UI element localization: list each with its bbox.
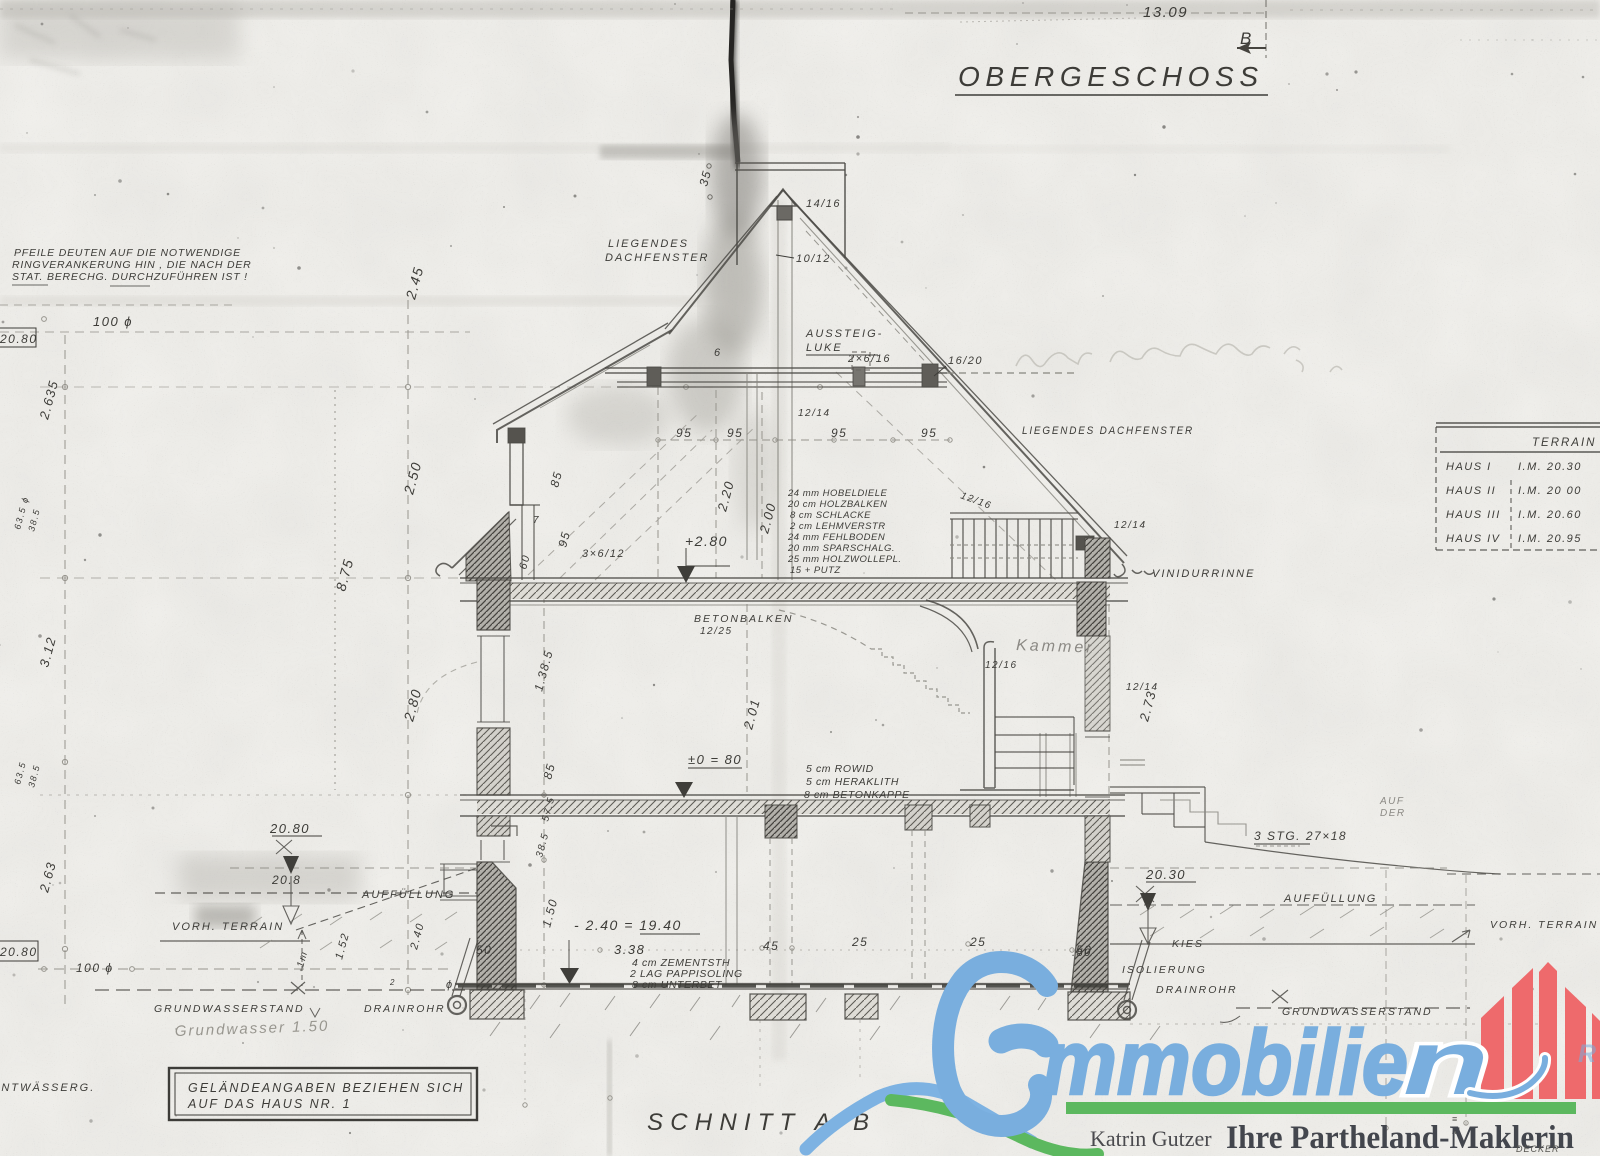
- svg-text:DRAINROHR: DRAINROHR: [1156, 984, 1238, 996]
- svg-text:20 cm HOLZBALKEN: 20 cm HOLZBALKEN: [787, 499, 887, 510]
- svg-text:DACHFENSTER: DACHFENSTER: [605, 252, 710, 264]
- svg-text:DRAINROHR: DRAINROHR: [364, 1003, 446, 1015]
- svg-text:STAT. BERECHG. DURCHZUFÜHREN I: STAT. BERECHG. DURCHZUFÜHREN IST !: [12, 271, 248, 283]
- svg-text:ϕ: ϕ: [446, 979, 454, 991]
- svg-text:I.M. 20.30: I.M. 20.30: [1518, 461, 1582, 473]
- svg-text:R: R: [1578, 1040, 1596, 1068]
- svg-text:ISOLIERUNG: ISOLIERUNG: [1122, 964, 1207, 976]
- svg-text:50: 50: [476, 943, 492, 957]
- svg-text:HAUS III: HAUS III: [1446, 509, 1501, 521]
- svg-text:12/14: 12/14: [798, 408, 831, 419]
- svg-text:95: 95: [921, 426, 937, 440]
- svg-text:20.30: 20.30: [1145, 867, 1186, 882]
- svg-text:RINGVERANKERUNG HIN , DIE NACH: RINGVERANKERUNG HIN , DIE NACH DER: [12, 259, 252, 271]
- svg-text:14/16: 14/16: [806, 198, 841, 210]
- svg-text:AUFFÜLLUNG: AUFFÜLLUNG: [1283, 893, 1377, 905]
- svg-text:25: 25: [851, 935, 868, 949]
- svg-text:5 cm ROWID: 5 cm ROWID: [806, 763, 874, 775]
- svg-text:AUF DAS HAUS NR. 1: AUF DAS HAUS NR. 1: [187, 1097, 352, 1111]
- svg-text:I.M. 20 00: I.M. 20 00: [1518, 485, 1582, 497]
- svg-text:VORH. TERRAIN: VORH. TERRAIN: [1490, 919, 1598, 931]
- svg-text:95: 95: [676, 426, 692, 440]
- svg-text:8 cm SCHLACKE: 8 cm SCHLACKE: [790, 510, 871, 521]
- svg-text:AUSSTEIG-: AUSSTEIG-: [805, 328, 883, 340]
- svg-text:12/16: 12/16: [985, 660, 1018, 671]
- svg-text:DER: DER: [1380, 808, 1406, 819]
- svg-text:GELÄNDEANGABEN BEZIEHEN SICH: GELÄNDEANGABEN BEZIEHEN SICH: [188, 1081, 464, 1095]
- svg-text:mmobilie: mmobilie: [1043, 1012, 1408, 1114]
- svg-text:ENTWÄSSERG.: ENTWÄSSERG.: [0, 1082, 95, 1094]
- svg-text:2: 2: [389, 978, 396, 987]
- svg-text:3.38: 3.38: [614, 942, 645, 957]
- svg-text:24 mm HOBELDIELE: 24 mm HOBELDIELE: [787, 488, 887, 499]
- svg-text:12/25: 12/25: [700, 626, 733, 637]
- svg-text:20.80: 20.80: [269, 821, 310, 836]
- svg-text:Kammer: Kammer: [1016, 637, 1095, 657]
- svg-text:I.M. 20.95: I.M. 20.95: [1518, 533, 1582, 545]
- svg-text:16/20: 16/20: [948, 355, 983, 367]
- svg-text:LIEGENDES DACHFENSTER: LIEGENDES DACHFENSTER: [1022, 425, 1194, 437]
- svg-text:12/14: 12/14: [1114, 520, 1147, 531]
- svg-text:±0 = 80: ±0 = 80: [688, 752, 742, 767]
- svg-text:2 cm LEHMVERSTR: 2 cm LEHMVERSTR: [789, 521, 886, 532]
- svg-text:VINIDURRINNE: VINIDURRINNE: [1152, 568, 1255, 580]
- svg-text:AUF: AUF: [1379, 796, 1405, 807]
- svg-text:3 STG. 27×18: 3 STG. 27×18: [1254, 829, 1347, 843]
- svg-text:24 mm FEHLBODEN: 24 mm FEHLBODEN: [787, 532, 885, 543]
- svg-text:VORH. TERRAIN: VORH. TERRAIN: [172, 921, 284, 933]
- svg-text:KIES: KIES: [1172, 938, 1204, 950]
- svg-text:100 ϕ: 100 ϕ: [93, 314, 133, 329]
- svg-text:45: 45: [763, 939, 779, 953]
- svg-text:2×6/16: 2×6/16: [847, 353, 891, 365]
- svg-text:5 cm HERAKLITH: 5 cm HERAKLITH: [806, 776, 899, 788]
- svg-text:B: B: [1240, 29, 1253, 48]
- svg-text:I.M. 20.60: I.M. 20.60: [1518, 509, 1582, 521]
- svg-text:6: 6: [714, 347, 722, 359]
- svg-text:PFEILE DEUTEN AUF DIE NOTWENDI: PFEILE DEUTEN AUF DIE NOTWENDIGE: [14, 247, 241, 259]
- svg-text:100 ϕ: 100 ϕ: [76, 961, 114, 975]
- svg-text:95: 95: [727, 426, 743, 440]
- svg-text:HAUS I: HAUS I: [1446, 461, 1492, 473]
- svg-text:3×6/12: 3×6/12: [582, 548, 625, 560]
- svg-text:HAUS II: HAUS II: [1446, 485, 1496, 497]
- svg-text:25: 25: [969, 935, 986, 949]
- svg-text:20.80: 20.80: [0, 945, 38, 959]
- svg-text:LUKE: LUKE: [806, 342, 843, 354]
- svg-text:10/12: 10/12: [796, 253, 831, 265]
- svg-text:.50: .50: [1072, 947, 1092, 959]
- svg-text:15 + PUTZ: 15 + PUTZ: [790, 565, 841, 576]
- svg-text:+2.80: +2.80: [685, 533, 728, 549]
- svg-text:20.80: 20.80: [0, 332, 38, 346]
- svg-text:HAUS IV: HAUS IV: [1446, 533, 1501, 545]
- svg-text:Katrin Gutzer: Katrin Gutzer: [1090, 1126, 1212, 1151]
- svg-text:95: 95: [831, 426, 847, 440]
- svg-text:8 cm BETONKAPPE: 8 cm BETONKAPPE: [804, 789, 910, 801]
- svg-text:20 mm SPARSCHALG.: 20 mm SPARSCHALG.: [787, 543, 895, 554]
- svg-text:25 mm HOLZWOLLEPL.: 25 mm HOLZWOLLEPL.: [787, 554, 902, 565]
- svg-text:- 2.40 = 19.40: - 2.40 = 19.40: [574, 917, 682, 933]
- svg-text:LIEGENDES: LIEGENDES: [608, 238, 689, 250]
- svg-text:20.8: 20.8: [271, 873, 301, 887]
- svg-text:8 cm UNTERBET: 8 cm UNTERBET: [632, 979, 723, 991]
- svg-text:AUFFÜLLUNG: AUFFÜLLUNG: [361, 889, 455, 901]
- svg-text:GRUNDWASSERSTAND: GRUNDWASSERSTAND: [154, 1003, 305, 1015]
- svg-text:DECKER: DECKER: [1516, 1144, 1560, 1154]
- svg-text:13.09: 13.09: [1143, 4, 1188, 21]
- svg-text:TERRAIN: TERRAIN: [1532, 437, 1596, 449]
- svg-text:BETONBALKEN: BETONBALKEN: [694, 613, 793, 625]
- svg-text:7: 7: [533, 515, 540, 526]
